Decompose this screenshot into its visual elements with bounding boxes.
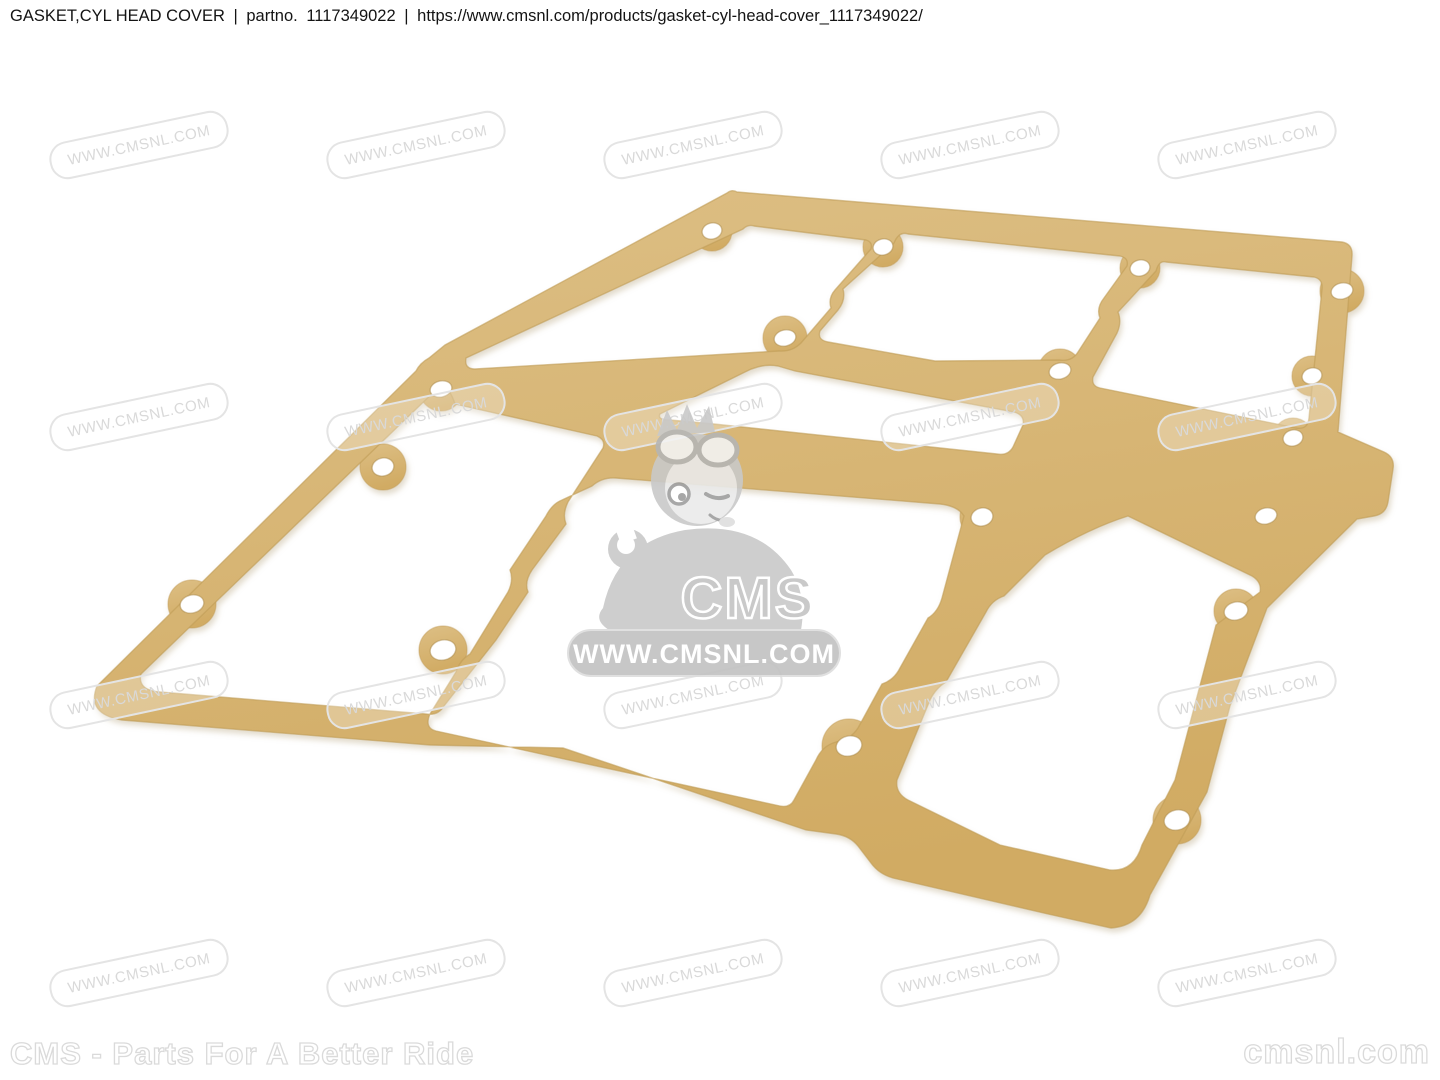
goggles-left-lens [658,432,696,462]
page-header-caption: GASKET,CYL HEAD COVER | partno. 11173490… [8,7,925,26]
mascot-pupil [678,493,686,501]
cms-logo-watermark: CMS WWW.CMSNL.COM [565,402,855,687]
product-url: https://www.cmsnl.com/products/gasket-cy… [415,7,925,25]
part-number-label: partno. [244,7,299,25]
logo-brand-text: CMS [681,566,816,631]
part-number: 1117349022 [304,7,397,25]
goggles-right-lens [699,435,737,465]
mascot-tongue [719,517,735,527]
footer-tagline: CMS - Parts For A Better Ride [10,1036,474,1072]
page-title: GASKET,CYL HEAD COVER [8,7,227,25]
separator: | [231,7,239,25]
mascot-eye-open [669,484,689,504]
logo-banner-text: WWW.CMSNL.COM [573,639,835,669]
footer-site-name: cmsnl.com [1243,1033,1430,1072]
product-photo-region: WWW.CMSNL.COMWWW.CMSNL.COMWWW.CMSNL.COMW… [0,0,1440,1080]
separator: | [402,7,410,25]
